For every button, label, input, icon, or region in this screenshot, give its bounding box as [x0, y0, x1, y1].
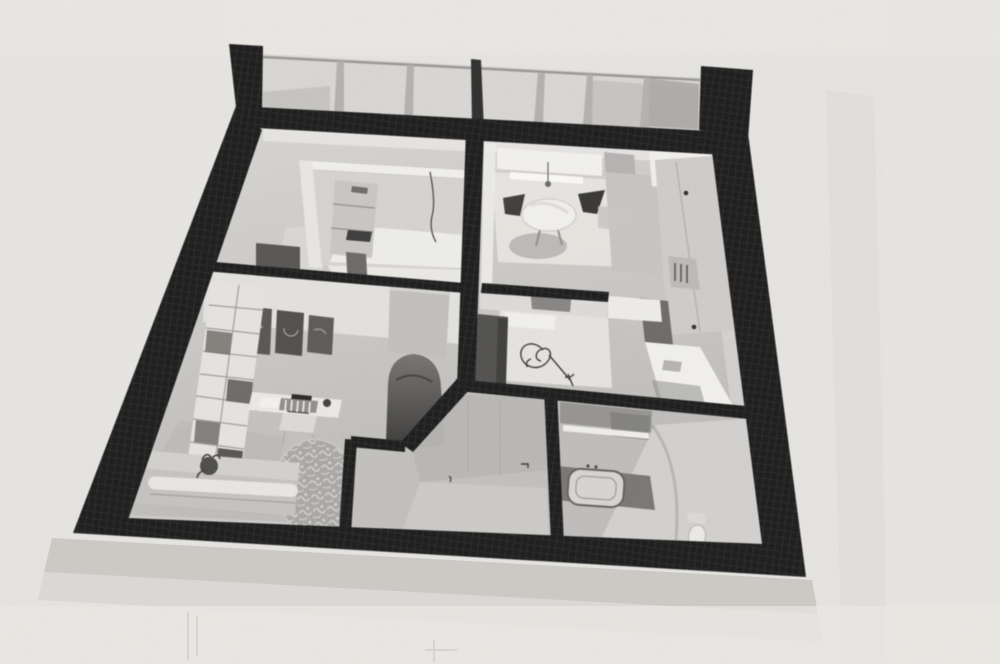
pendant-lamp — [545, 181, 551, 187]
headboard — [530, 288, 572, 312]
wall-hall-stub — [351, 436, 405, 452]
plan-cast-shadow — [44, 538, 818, 614]
window-wall-joint — [471, 59, 484, 130]
wall-curve-shadow — [652, 425, 677, 541]
table-highlight — [530, 203, 568, 213]
dark-wardrobe — [256, 243, 300, 284]
sunlight-patch — [318, 232, 472, 288]
wall-center-vertical — [457, 131, 484, 389]
lamp-cable — [430, 172, 436, 242]
cubby-dark-1 — [205, 330, 232, 355]
faucet-dot-1 — [586, 464, 589, 467]
mirror-dark-reflection — [610, 412, 650, 440]
wall-living-hall — [339, 439, 357, 533]
basin-rim — [575, 476, 616, 501]
walls — [73, 44, 806, 577]
bottle-shelf — [668, 256, 700, 290]
wall-top — [236, 106, 748, 156]
room-small-bedroom — [470, 288, 662, 388]
open-book — [259, 397, 281, 408]
dark-armchair — [386, 354, 445, 448]
paper-right-streak — [826, 90, 888, 664]
wall-hall-bathroom — [544, 389, 564, 544]
dark-cabinet-shade — [496, 318, 508, 384]
alcove-beam — [300, 160, 470, 179]
wall-right — [712, 133, 806, 577]
picture-motifs — [248, 322, 326, 336]
paper-top-light — [0, 0, 1000, 55]
cubby-dark-4 — [216, 448, 243, 471]
cabinet-handle-top — [684, 191, 689, 196]
room-bedroom-office — [256, 160, 472, 290]
mirror-strip — [563, 425, 649, 439]
bed — [492, 310, 612, 388]
window-mullions — [334, 61, 650, 128]
wall-diagonal — [400, 380, 470, 452]
counter-shadow — [652, 380, 706, 408]
wall-south-interior — [456, 379, 759, 420]
floor-plan — [73, 44, 806, 577]
hallway-upper-shade — [413, 394, 548, 482]
door-seams — [468, 400, 500, 476]
east-wall-face — [700, 153, 762, 544]
balcony-grey-panel — [604, 152, 636, 180]
grey-wardrobe — [388, 282, 450, 358]
sunlight-streak — [276, 224, 330, 284]
toilet-tank — [687, 512, 706, 524]
floor-plan-photo — [0, 0, 1000, 664]
sofa-armrest — [110, 462, 134, 478]
toilet-bowl — [687, 524, 707, 548]
paper-base — [0, 0, 1000, 664]
balcony-sill — [510, 172, 583, 184]
photo-grain — [0, 0, 1000, 664]
shelf-plinth — [185, 465, 241, 484]
basin — [567, 468, 625, 508]
alcove-sun — [330, 225, 465, 268]
shelf-unit — [330, 180, 378, 258]
kitchen-counter — [645, 342, 740, 418]
alcove-interior — [305, 168, 468, 270]
tall-cabinets — [655, 156, 738, 335]
sofa — [109, 448, 300, 516]
faucet-dot-2 — [594, 465, 597, 468]
desk-top — [248, 392, 342, 418]
laptop-screen — [290, 394, 312, 407]
table-legs — [536, 230, 562, 246]
framed-pictures — [240, 306, 334, 356]
wall-left — [73, 106, 262, 533]
shelf-lines — [331, 204, 375, 232]
cabinet-seam — [676, 162, 700, 332]
shelf-grid — [190, 285, 263, 469]
bottles — [675, 263, 687, 283]
hallway-light-floor — [402, 482, 549, 538]
dining-table-top — [522, 199, 576, 231]
wardrobe-top-edge — [390, 282, 450, 295]
cubby-dark-2 — [226, 379, 253, 404]
shelf-small-item — [351, 186, 368, 194]
chair-back — [279, 398, 318, 413]
window-top-rail — [263, 57, 700, 80]
counter-item — [662, 360, 682, 372]
rose-sketch — [521, 344, 574, 386]
pillow — [503, 312, 556, 330]
window-post-right — [699, 66, 753, 140]
living-vignette — [132, 420, 285, 515]
bathroom-floor — [558, 399, 763, 543]
living-back-wall — [203, 268, 476, 345]
mirror-wall-band — [560, 402, 652, 432]
floor-base — [128, 130, 763, 545]
laptop-base — [287, 405, 312, 414]
hallway-floor — [351, 392, 556, 540]
table-shadow — [509, 233, 567, 259]
paper-faint-marks — [188, 612, 457, 662]
shelf-dark-item — [346, 230, 372, 242]
chair-slats — [285, 400, 310, 413]
wall-dining-bedroom — [481, 283, 609, 302]
dining-left-column — [481, 143, 496, 290]
paper-bottom-light — [0, 606, 1000, 664]
glass-pane-dark — [645, 78, 699, 129]
vanity-counter — [556, 466, 655, 510]
window-post-left — [229, 44, 263, 112]
glass-pane-dim — [590, 80, 699, 130]
sofa-back — [114, 448, 300, 481]
bench-cushion — [598, 206, 636, 231]
wall-bottom — [73, 518, 806, 577]
chair-legs — [283, 431, 315, 446]
door-handle-mark — [521, 464, 528, 468]
dining-bright-floor — [492, 172, 652, 268]
potted-plant — [197, 455, 220, 478]
floor-mark — [449, 476, 451, 482]
sofa-seam — [150, 494, 296, 503]
desk-area — [248, 392, 342, 446]
south-wall-face — [129, 515, 762, 549]
room-hallway — [351, 392, 556, 540]
room-living — [109, 268, 476, 540]
north-wall-face — [263, 129, 740, 165]
room-kitchen-dining — [481, 143, 662, 290]
plan-cast-shadow-soft — [38, 572, 822, 642]
paper-left-light — [0, 0, 225, 430]
dining-right-slab — [605, 172, 662, 275]
bedroom-window-light — [608, 296, 662, 322]
sofa-bolster — [148, 476, 298, 497]
paper-background — [0, 0, 1000, 664]
window-band — [262, 54, 701, 130]
glass-reflection — [263, 86, 330, 112]
cabinet-handle-bottom — [692, 325, 697, 330]
paper-right-edge — [885, 0, 1000, 664]
doorway-shadow — [346, 252, 368, 290]
sofa-seat — [109, 466, 298, 516]
armchair-fold — [396, 375, 432, 382]
balcony-door-frame — [497, 148, 602, 176]
bathroom-sunlit-wall — [600, 418, 763, 543]
chair-seat — [279, 413, 317, 433]
dining-chair-left — [503, 194, 525, 216]
photographed-floor-plan-page — [0, 0, 1000, 664]
dark-niche — [640, 298, 673, 345]
room-bathroom — [556, 399, 763, 548]
desk-legs — [254, 410, 337, 437]
dining-chair-right — [578, 190, 605, 214]
bookshelf — [185, 282, 266, 484]
kitchen-strip — [640, 140, 740, 418]
wall-bedroom-living — [203, 261, 477, 294]
round-rug — [269, 434, 364, 540]
glass-band — [262, 54, 701, 130]
fridge-top — [648, 140, 716, 198]
alcove-left-frame — [299, 160, 322, 268]
desk-mug — [323, 399, 331, 407]
bedroom-back-face — [480, 293, 608, 318]
dark-side-cabinet — [470, 314, 508, 386]
cubby-dark-3 — [194, 420, 220, 445]
